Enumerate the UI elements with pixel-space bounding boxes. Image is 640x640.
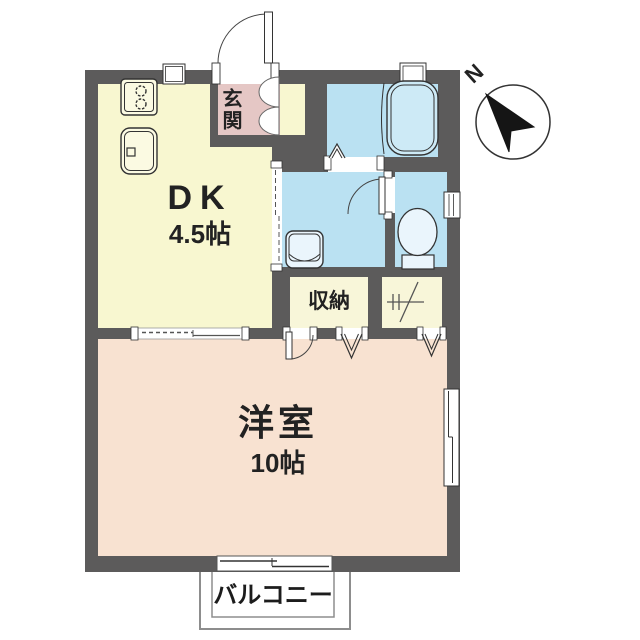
washroom-sliding-door-icon bbox=[271, 161, 282, 271]
shoe-cabinet-doors-icon bbox=[259, 77, 279, 135]
genkan-label: 玄関 bbox=[219, 86, 240, 134]
western-room-label: 洋室 bbox=[178, 404, 378, 442]
folding-bath-door-icon bbox=[324, 144, 384, 170]
toilet-icon bbox=[398, 209, 437, 270]
washbasin-icon bbox=[286, 231, 323, 268]
stove-icon bbox=[121, 79, 157, 115]
western-room-window-icon bbox=[444, 389, 459, 486]
dk-room-label: DK bbox=[130, 181, 270, 217]
water-heater-space-icon bbox=[387, 282, 424, 322]
toilet-door-icon bbox=[348, 171, 392, 219]
balcony-sliding-door-icon bbox=[217, 556, 332, 571]
closet-bifold-icon-1 bbox=[336, 327, 368, 358]
bathtub-icon bbox=[382, 81, 439, 155]
storage-label: 収納 bbox=[290, 291, 368, 313]
balcony-label: バルコニー bbox=[212, 583, 334, 608]
western-room-size-label: 10帖 bbox=[178, 450, 378, 477]
entrance-door-icon bbox=[212, 12, 279, 84]
fixtures-overlay bbox=[0, 0, 640, 640]
closet-bifold-icon-2 bbox=[417, 327, 446, 356]
dk-sliding-door-icon bbox=[131, 327, 249, 340]
toilet-window-icon bbox=[444, 192, 460, 218]
dk-size-label: 4.5帖 bbox=[130, 221, 270, 248]
floor-plan: DK 4.5帖 玄関 収納 洋室 10帖 バルコニー N bbox=[0, 0, 640, 640]
kitchen-window-icon bbox=[163, 64, 185, 84]
storage-door-icon bbox=[283, 327, 317, 359]
compass-icon bbox=[476, 85, 550, 159]
kitchen-sink-icon bbox=[121, 128, 157, 174]
